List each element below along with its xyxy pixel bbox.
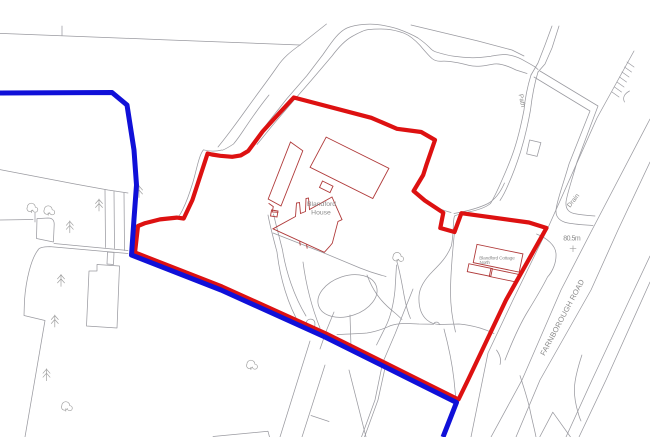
svg-text:North: North (480, 260, 491, 266)
svg-text:80.5m: 80.5m (563, 236, 581, 243)
svg-text:Blandford: Blandford (307, 201, 336, 208)
svg-text:House: House (311, 210, 331, 217)
